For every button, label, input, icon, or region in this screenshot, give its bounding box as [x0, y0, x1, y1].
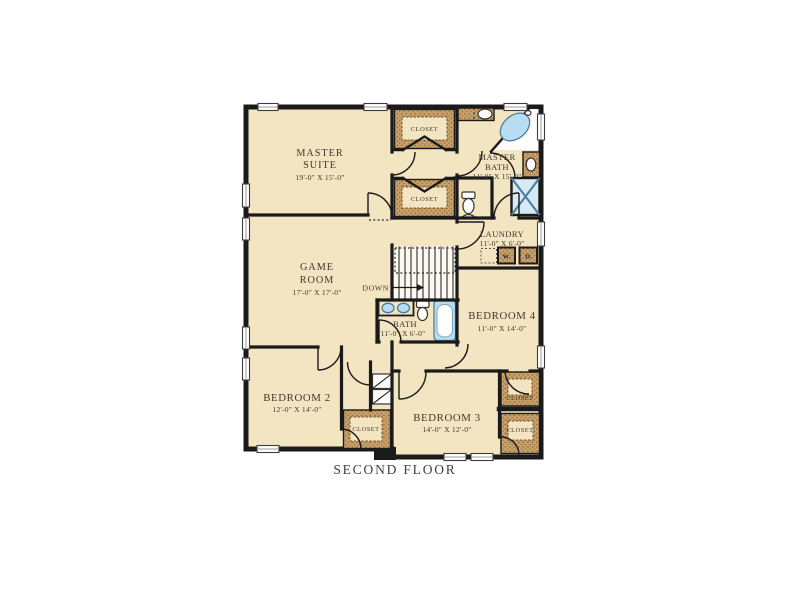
bath-name: BATH — [393, 319, 417, 329]
window — [364, 104, 387, 111]
shower-icon — [512, 178, 540, 215]
window — [471, 454, 493, 461]
bedroom4-dims: 11'-0" X 14'-0" — [478, 324, 527, 333]
window — [258, 104, 278, 111]
master-bath-name-2: BATH — [485, 162, 509, 172]
master-bath-name-1: MASTER — [478, 152, 515, 162]
room-bedroom-3: BEDROOM 3 14'-0" X 12'-0" — [413, 412, 481, 434]
closet-master-top-label: CLOSET — [411, 126, 438, 133]
closet-bedroom4-label: CLOSET — [506, 395, 533, 402]
window — [538, 114, 545, 140]
closet-bedroom3-label: CLOSET — [506, 427, 533, 434]
floor-plan-drawing: W. D. — [0, 0, 800, 600]
game-room-name-1: GAME — [300, 262, 334, 273]
window — [257, 446, 279, 453]
plan-caption: SECOND FLOOR — [333, 462, 456, 477]
window — [444, 454, 466, 461]
room-laundry: LAUNDRY 11'-0" X 6'-0" — [480, 229, 525, 248]
bedroom2-name: BEDROOM 2 — [263, 392, 331, 404]
closet-master-bottom-label: CLOSET — [411, 196, 438, 203]
floor-plan-page: W. D. — [0, 0, 800, 600]
window — [504, 104, 527, 111]
game-room-dims: 17'-0" X 17'-0" — [292, 288, 341, 297]
window — [243, 327, 250, 349]
master-suite-name-2: SUITE — [303, 160, 337, 171]
tub-faucet-icon — [525, 111, 531, 116]
window — [243, 358, 250, 380]
master-suite-dims: 19'-0" X 15'-0" — [295, 173, 344, 182]
master-sink-1-icon — [478, 109, 492, 119]
stairs-down-label: DOWN — [362, 284, 389, 293]
room-bedroom-2: BEDROOM 2 12'-0" X 14'-0" — [263, 392, 331, 414]
room-bedroom-4: BEDROOM 4 11'-0" X 14'-0" — [468, 310, 536, 333]
bedroom3-dims: 14'-0" X 12'-0" — [422, 425, 471, 434]
linen-shelves — [373, 374, 392, 404]
master-suite-name-1: MASTER — [296, 148, 343, 159]
bath-tub-icon — [434, 301, 456, 341]
laundry-name: LAUNDRY — [480, 229, 524, 239]
dryer-label: D. — [525, 254, 532, 261]
game-room-name-2: ROOM — [300, 275, 335, 286]
bath-sink-1-icon — [382, 303, 394, 312]
window — [243, 218, 250, 240]
bedroom4-name: BEDROOM 4 — [468, 310, 536, 322]
staircase — [391, 247, 457, 300]
window — [538, 222, 545, 246]
laundry-dims: 11'-0" X 6'-0" — [480, 239, 525, 248]
window — [243, 184, 250, 207]
master-sink-2-icon — [526, 158, 536, 171]
window — [538, 346, 545, 368]
bath-sink-2-icon — [398, 303, 410, 312]
master-bath-dims: 11'-0" X 15'-0" — [473, 172, 522, 181]
closet-bedroom2-label: CLOSET — [352, 426, 379, 433]
bedroom2-dims: 12'-0" X 14'-0" — [272, 405, 321, 414]
bath-toilet-icon — [417, 301, 430, 321]
washer-label: W. — [503, 254, 511, 261]
bedroom3-name: BEDROOM 3 — [413, 412, 481, 424]
bath-dims: 11'-0" X 6'-0" — [381, 329, 426, 338]
